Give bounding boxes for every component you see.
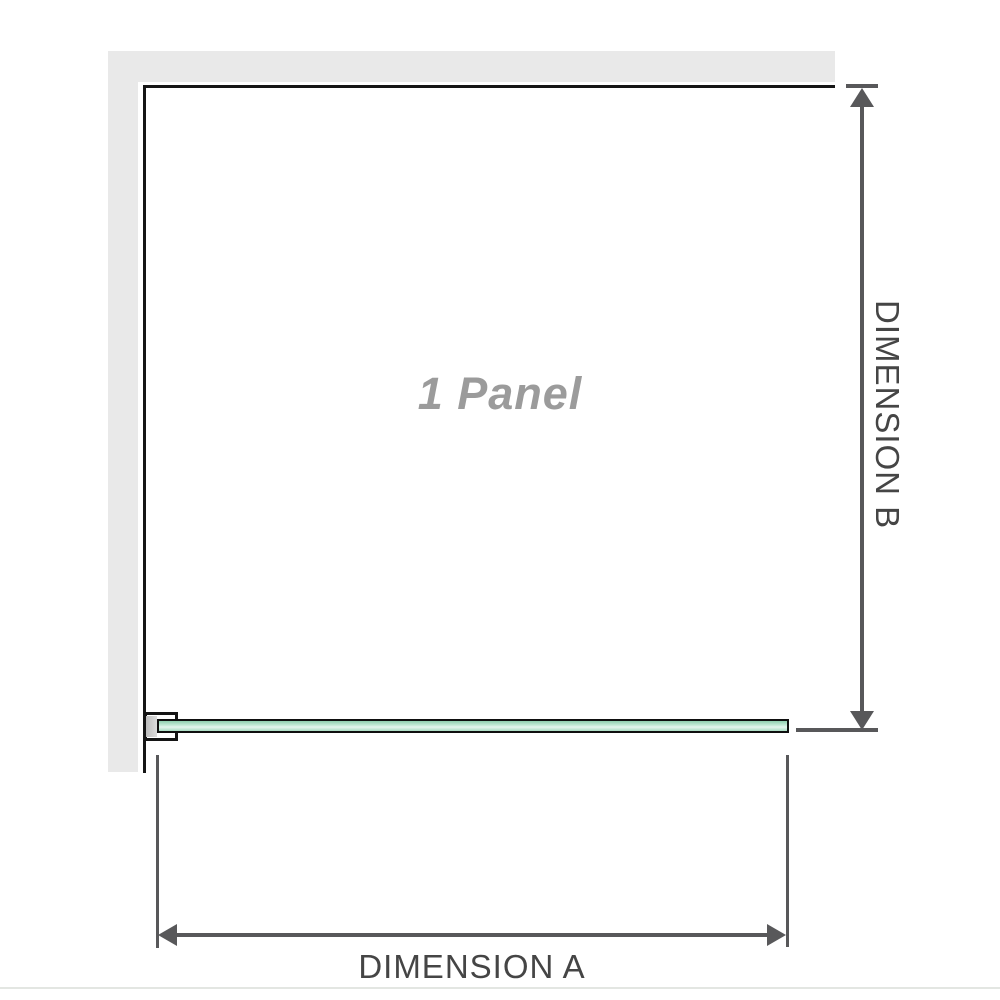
arrow-left-icon: [158, 924, 177, 946]
arrow-right-icon: [767, 924, 786, 946]
panel-count-label: 1 Panel: [300, 368, 700, 420]
dimension-b-label: DIMENSION B: [871, 300, 903, 524]
arrow-up-icon: [850, 88, 874, 107]
dimension-a-extension-right: [786, 755, 789, 947]
dimension-a-extension-left: [156, 755, 159, 948]
arrow-down-icon: [850, 711, 874, 730]
enclosure-outline-left: [143, 85, 146, 773]
dimension-b-line: [860, 100, 864, 718]
enclosure-outline-top: [143, 85, 835, 88]
dimension-a-label: DIMENSION A: [272, 948, 672, 986]
page-baseline: [0, 987, 1000, 989]
wall-top-strip: [108, 51, 835, 82]
wall-left-strip: [108, 51, 138, 772]
dimension-a-line: [172, 933, 774, 937]
wall-bracket-pad: [146, 716, 157, 737]
dimension-diagram: 1 Panel DIMENSION B DIMENSION A: [0, 0, 1000, 1000]
glass-panel: [157, 719, 789, 733]
